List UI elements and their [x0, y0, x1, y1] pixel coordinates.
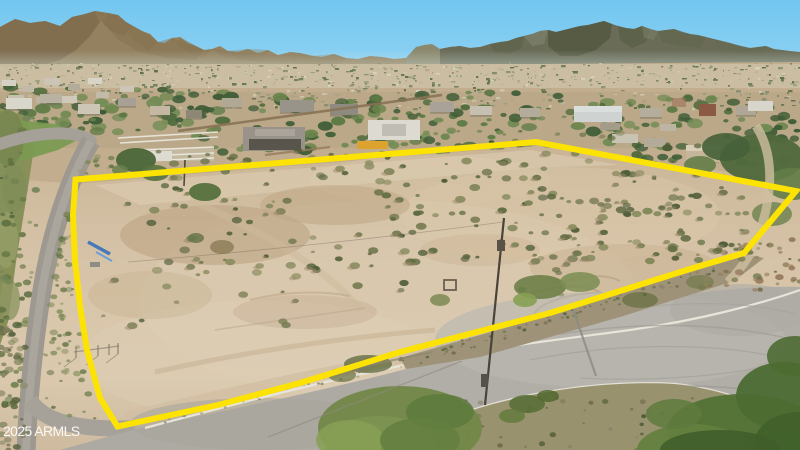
svg-text:2025 ARMLS: 2025 ARMLS — [3, 423, 80, 439]
